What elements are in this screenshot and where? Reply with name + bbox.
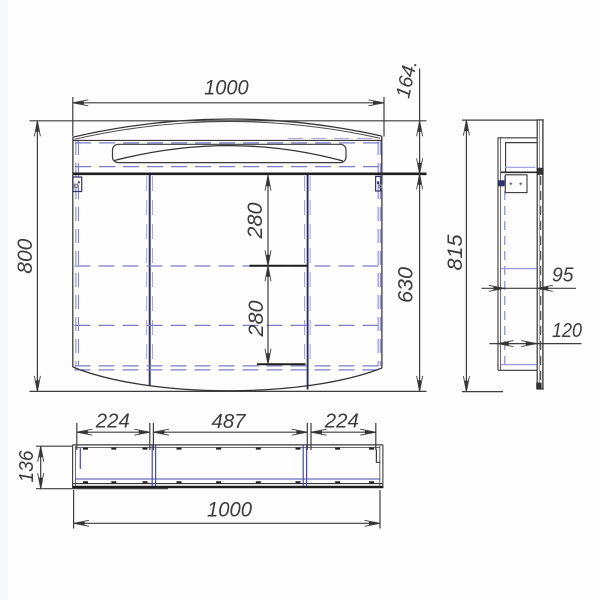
svg-text:487: 487 xyxy=(212,411,247,433)
svg-text:136: 136 xyxy=(16,450,38,483)
svg-text:1000: 1000 xyxy=(204,76,249,99)
svg-text:800: 800 xyxy=(14,238,37,273)
svg-text:224: 224 xyxy=(95,411,130,433)
svg-text:280: 280 xyxy=(244,202,267,239)
svg-text:815: 815 xyxy=(444,234,467,270)
svg-text:95: 95 xyxy=(552,265,574,287)
svg-text:630: 630 xyxy=(395,267,418,303)
svg-text:224: 224 xyxy=(324,411,359,433)
svg-text:120: 120 xyxy=(552,320,582,342)
svg-text:1000: 1000 xyxy=(207,499,252,522)
svg-text:280: 280 xyxy=(245,300,268,337)
